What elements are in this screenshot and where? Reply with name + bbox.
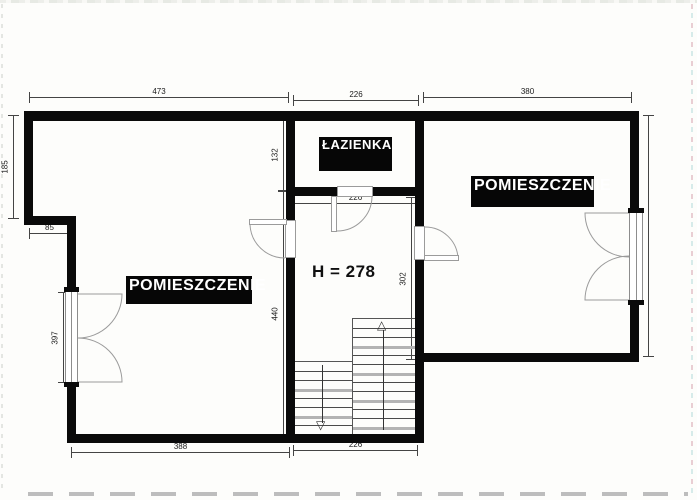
wall-left-lower-a bbox=[67, 216, 76, 291]
door-opening-left-room bbox=[285, 220, 296, 258]
window-casement-arc-left-bottom bbox=[78, 338, 122, 382]
wall-right-upper bbox=[630, 111, 639, 211]
wall-left-upper bbox=[24, 111, 33, 225]
room-label-bathroom: ŁAZIENKA bbox=[319, 137, 392, 171]
wall-bathroom-bottom-left bbox=[286, 187, 337, 196]
wall-right-room-bottom bbox=[415, 353, 639, 362]
room-label-right: POMIESZCZENIE bbox=[471, 176, 594, 207]
door-leaf-bathroom bbox=[331, 196, 337, 232]
door-opening-bathroom bbox=[337, 186, 373, 197]
window-casement-arc-right-top bbox=[585, 213, 629, 257]
window-left-mullion bbox=[71, 290, 72, 384]
wall-bathroom-bottom-right bbox=[373, 187, 424, 196]
window-right-cap-bottom bbox=[628, 300, 644, 305]
wall-top bbox=[24, 111, 639, 121]
door-leaf-right-room bbox=[424, 255, 459, 261]
wall-center-upper bbox=[286, 111, 295, 220]
window-left-cap-bottom bbox=[64, 382, 79, 387]
window-left-cap-top bbox=[64, 287, 79, 292]
floor-plan-sheet: 47322638085226388226185132440397302439 △… bbox=[0, 0, 697, 500]
door-swing-arc-left-room bbox=[250, 225, 285, 258]
room-label-left: POMIESZCZENIE bbox=[126, 276, 252, 304]
wall-hall-right-upper bbox=[415, 111, 424, 226]
window-right-cap-top bbox=[628, 208, 644, 213]
wall-center-lower bbox=[286, 258, 295, 443]
door-swing-arc-right-room bbox=[425, 227, 458, 258]
arcs-overlay bbox=[0, 0, 697, 500]
ceiling-height-note: H = 278 bbox=[312, 262, 376, 282]
window-right-mullion bbox=[636, 211, 637, 303]
door-leaf-left-room bbox=[249, 219, 287, 225]
window-casement-arc-right-bottom bbox=[585, 256, 629, 300]
wall-bottom bbox=[67, 434, 424, 443]
window-casement-arc-left-top bbox=[78, 294, 122, 338]
door-swing-arc-bathroom bbox=[337, 197, 372, 231]
wall-hall-right-lower bbox=[415, 260, 424, 443]
